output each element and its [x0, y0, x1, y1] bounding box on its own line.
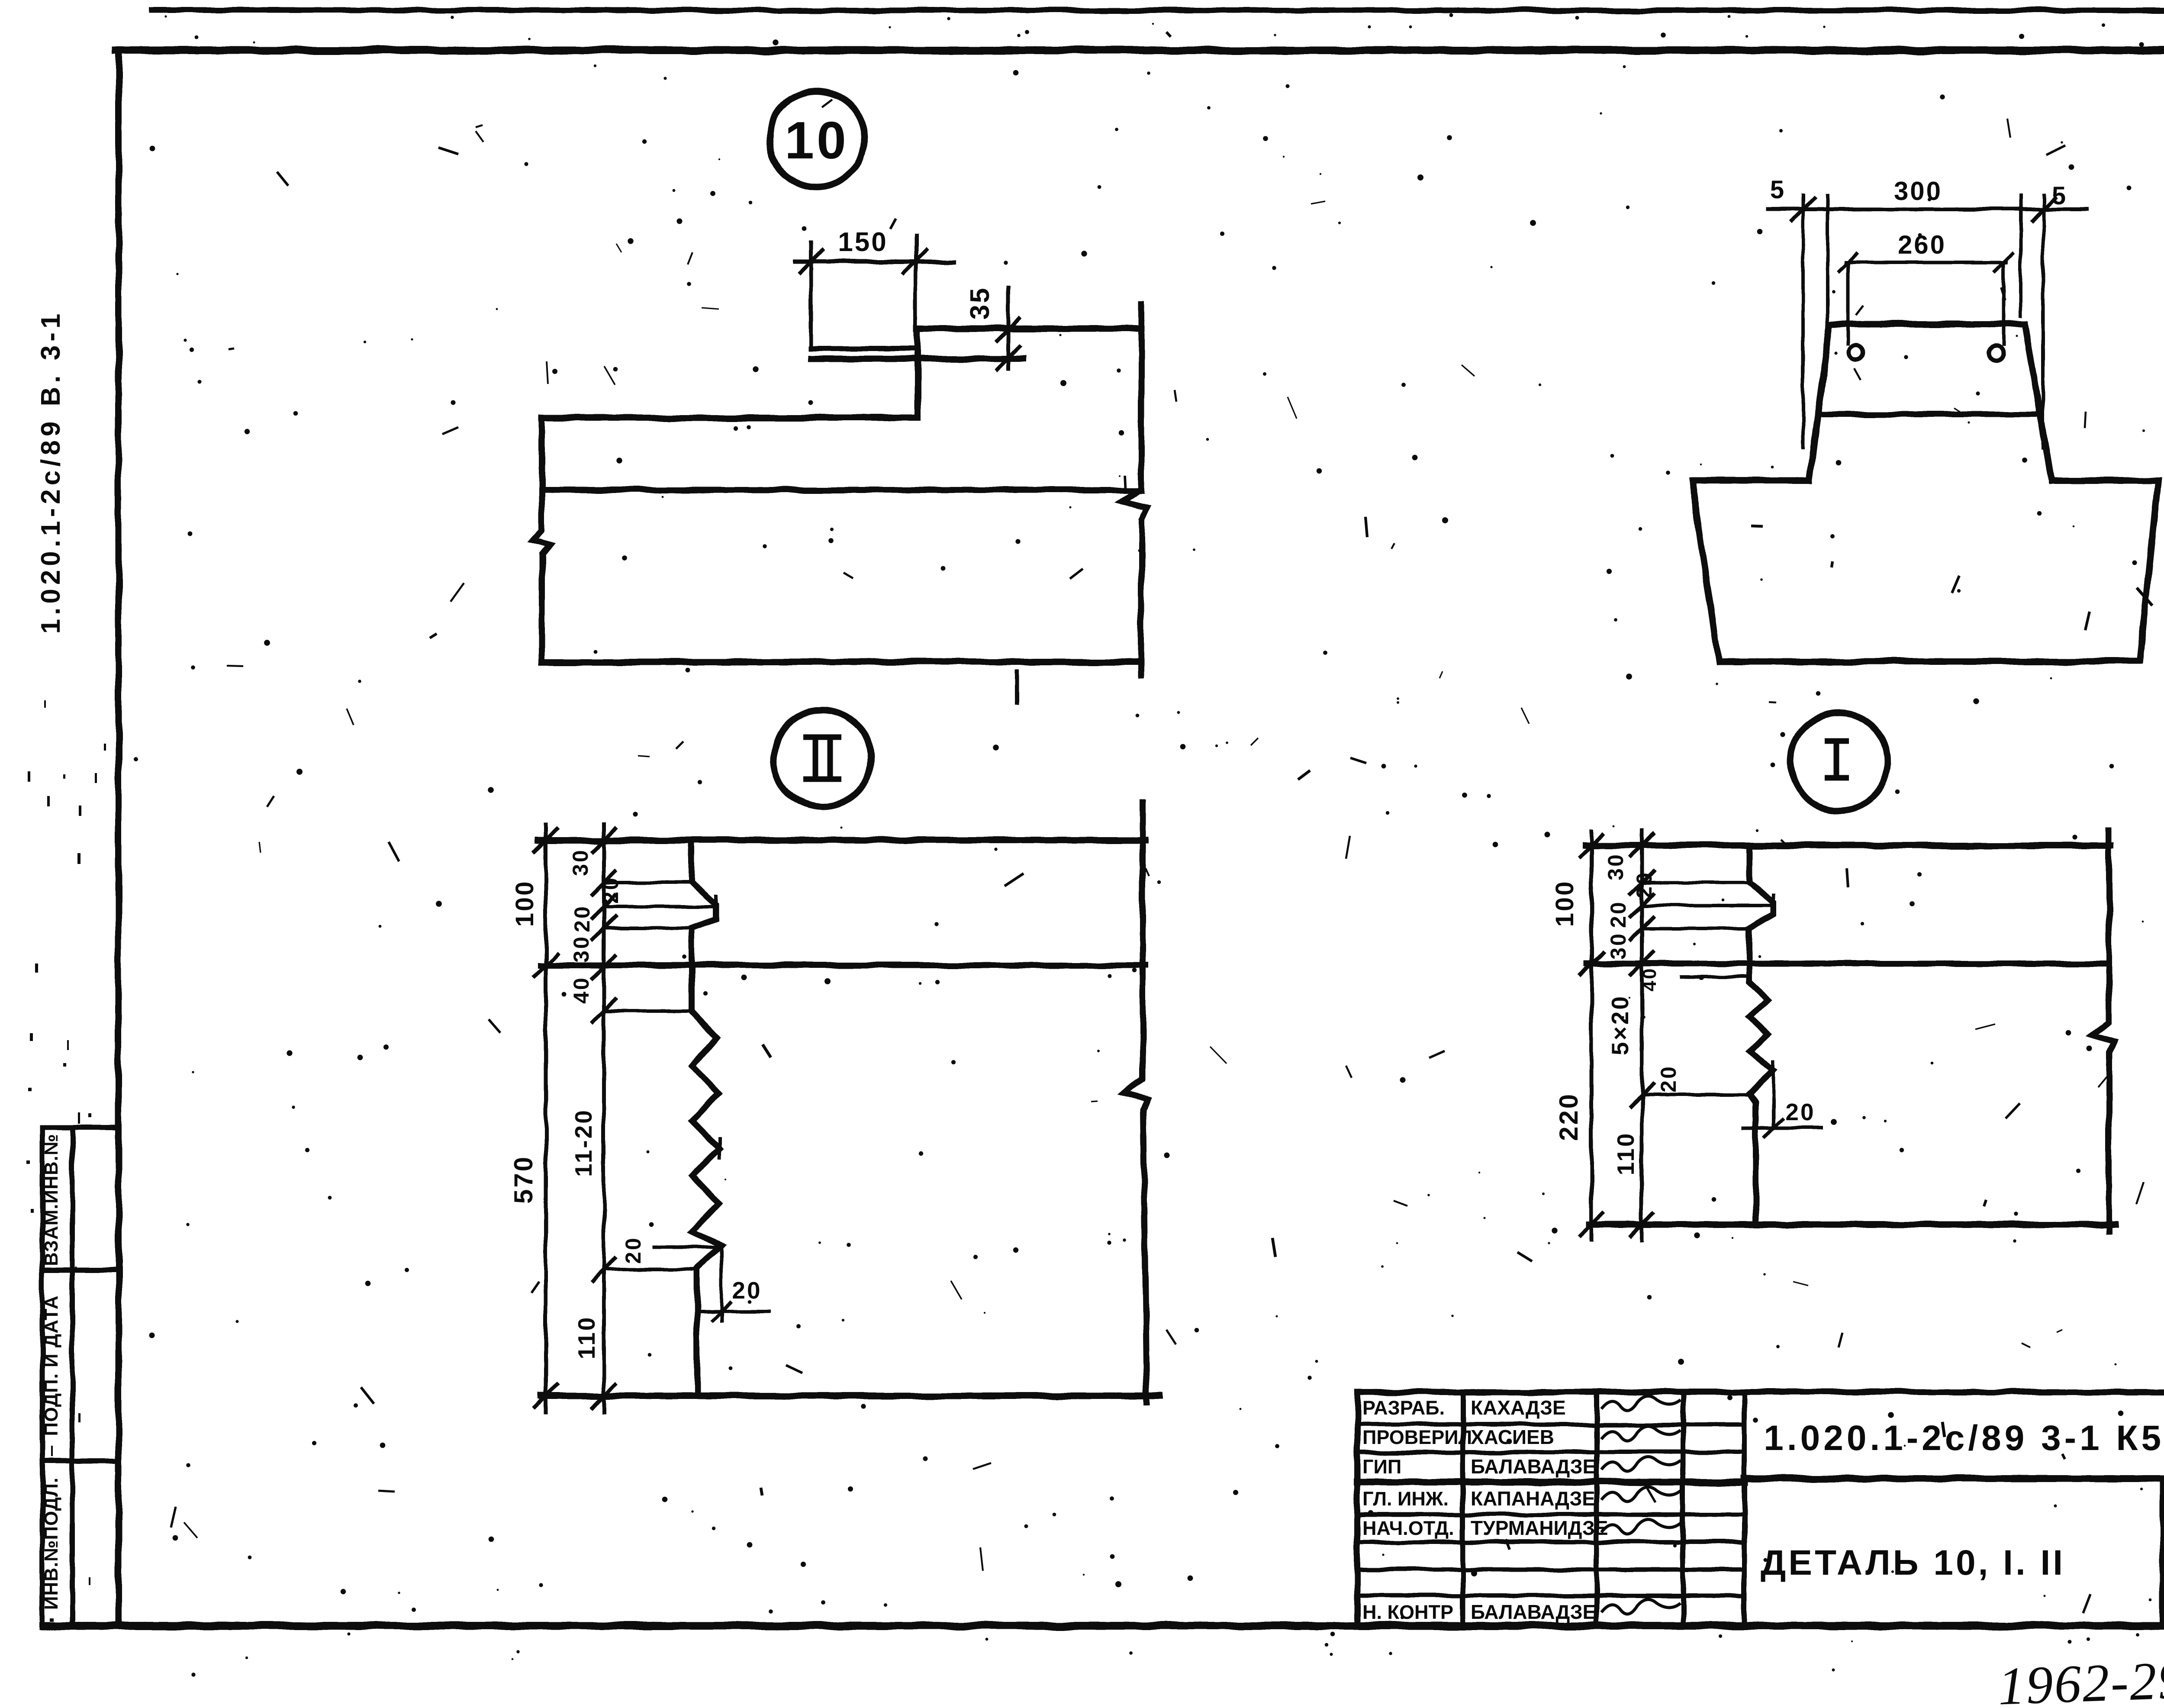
svg-text:110: 110: [573, 1316, 600, 1360]
svg-text:5: 5: [1770, 176, 1786, 204]
svg-text:20: 20: [599, 876, 623, 904]
svg-text:570: 570: [509, 1155, 538, 1204]
svg-text:20: 20: [570, 905, 594, 932]
svg-text:30: 30: [568, 848, 593, 876]
svg-text:30: 30: [569, 935, 593, 963]
svg-text:1962-29: 1962-29: [1997, 1650, 2164, 1708]
svg-text:100: 100: [511, 880, 539, 927]
svg-text:40: 40: [1639, 967, 1660, 992]
svg-text:35: 35: [965, 287, 995, 320]
svg-text:20: 20: [1656, 1065, 1681, 1092]
svg-text:БАЛАВАДЗЕ: БАЛАВАДЗЕ: [1471, 1455, 1596, 1478]
svg-text:НАЧ.ОТД.: НАЧ.ОТД.: [1362, 1517, 1454, 1539]
svg-text:ПОДП. И ДАТА: ПОДП. И ДАТА: [41, 1295, 62, 1436]
svg-text:ДЕТАЛЬ 10, I. II: ДЕТАЛЬ 10, I. II: [1761, 1543, 2065, 1582]
svg-text:220: 220: [1554, 1092, 1583, 1141]
svg-text:5×20: 5×20: [1607, 995, 1633, 1055]
svg-text:11-20: 11-20: [570, 1109, 597, 1177]
svg-text:30: 30: [1606, 932, 1630, 960]
svg-text:150: 150: [838, 227, 888, 257]
svg-text:20: 20: [1632, 871, 1656, 899]
svg-text:20: 20: [621, 1236, 645, 1264]
svg-text:РАЗРАБ.: РАЗРАБ.: [1362, 1397, 1445, 1419]
svg-text:40: 40: [569, 976, 593, 1004]
svg-text:1.020.1-2с/89 В. 3-1: 1.020.1-2с/89 В. 3-1: [36, 310, 66, 634]
svg-text:КАХАДЗЕ: КАХАДЗЕ: [1471, 1396, 1566, 1419]
svg-text:ПРОВЕРИЛ: ПРОВЕРИЛ: [1362, 1426, 1472, 1448]
svg-text:20: 20: [1606, 900, 1630, 928]
svg-text:20: 20: [1785, 1099, 1815, 1125]
svg-text:ИНВ.№ПОДЛ.: ИНВ.№ПОДЛ.: [41, 1477, 62, 1610]
svg-text:1.020.1-2с/89 3-1 К58: 1.020.1-2с/89 3-1 К58: [1764, 1418, 2164, 1458]
svg-text:10: 10: [785, 111, 849, 170]
svg-text:20: 20: [732, 1277, 762, 1304]
svg-text:ВЗАМ.ИНВ.№: ВЗАМ.ИНВ.№: [41, 1134, 62, 1266]
svg-text:5: 5: [2052, 182, 2067, 210]
svg-text:ТУРМАНИДЗЕ: ТУРМАНИДЗЕ: [1471, 1517, 1608, 1539]
svg-text:30: 30: [1604, 853, 1628, 880]
svg-text:КАПАНАДЗЕ: КАПАНАДЗЕ: [1471, 1487, 1595, 1510]
svg-text:300: 300: [1894, 177, 1942, 206]
svg-text:260: 260: [1898, 230, 1946, 259]
svg-text:БАЛАВАДЗЕ: БАЛАВАДЗЕ: [1471, 1601, 1596, 1623]
svg-text:Н. КОНТР: Н. КОНТР: [1362, 1601, 1453, 1623]
svg-text:ГИП: ГИП: [1362, 1456, 1401, 1478]
svg-text:110: 110: [1612, 1132, 1639, 1176]
svg-text:ГЛ. ИНЖ.: ГЛ. ИНЖ.: [1362, 1488, 1449, 1510]
svg-text:100: 100: [1551, 880, 1579, 927]
svg-text:ХАСИЕВ: ХАСИЕВ: [1471, 1426, 1554, 1448]
